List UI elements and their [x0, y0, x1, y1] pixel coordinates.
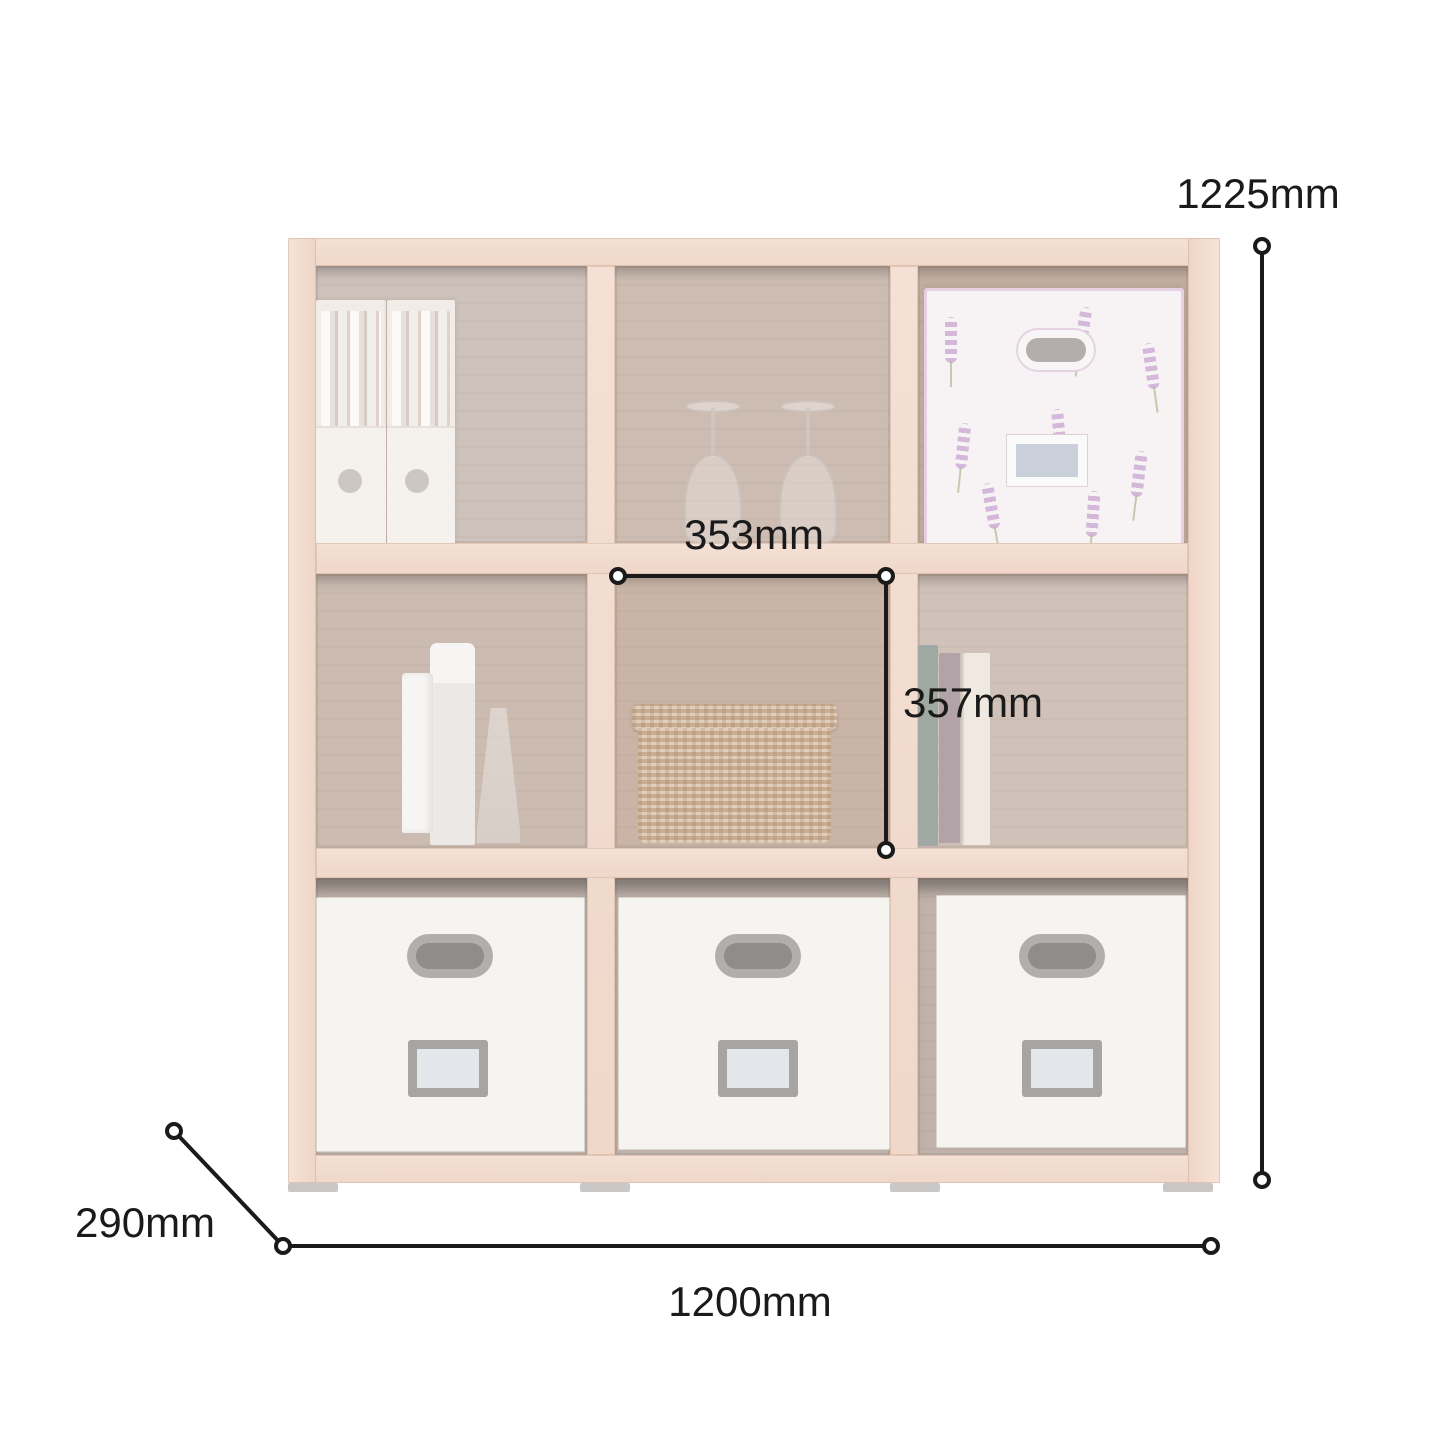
lavender-sprig — [1085, 491, 1100, 538]
shelf-foot — [580, 1183, 630, 1192]
box-label-holder — [718, 1040, 798, 1097]
shelf-bottom-rail — [288, 1155, 1220, 1183]
shelf-right-side — [1188, 238, 1220, 1183]
white-storage-box — [936, 895, 1186, 1148]
lavender-sprig — [981, 482, 1001, 529]
shelf-foot — [288, 1183, 338, 1192]
dimension-endpoint — [1204, 1239, 1218, 1253]
diagram-canvas: 1225mm 353mm 357mm 290mm 1200mm — [0, 0, 1440, 1440]
cell-bottom-middle — [615, 878, 890, 1155]
lavender-sprig — [955, 422, 972, 469]
book-spine — [918, 645, 938, 846]
box-label-holder — [408, 1040, 488, 1097]
lavender-sprig — [945, 317, 957, 363]
books-in-file — [321, 311, 381, 426]
shelf-horizontal-divider — [316, 848, 1188, 878]
finger-hole — [338, 469, 362, 493]
wicker-basket-rim — [632, 704, 837, 730]
cell-bottom-left — [316, 878, 587, 1155]
cosmetic-tube — [477, 708, 520, 843]
cell-top-right — [918, 266, 1188, 543]
box-label-holder — [1022, 1040, 1102, 1097]
cosmetic-bottle — [402, 673, 433, 833]
bookshelf-illustration — [288, 238, 1220, 1183]
finger-hole — [405, 469, 429, 493]
overall-height-label: 1225mm — [1148, 170, 1368, 218]
dimension-endpoint — [276, 1239, 290, 1253]
box-handle-cutout — [407, 934, 493, 978]
inner-cell-height-label: 357mm — [903, 679, 1043, 727]
dimension-endpoint — [167, 1124, 181, 1138]
dimension-endpoint — [1255, 239, 1269, 253]
overall-width-label: 1200mm — [650, 1278, 850, 1326]
books-in-file — [392, 311, 450, 426]
box-handle-cutout — [1019, 934, 1105, 978]
box-label-holder — [1007, 435, 1087, 486]
wicker-basket — [638, 728, 831, 843]
shelf-top-rail — [288, 238, 1220, 266]
box-handle-cutout — [1018, 330, 1094, 370]
depth-label: 290mm — [75, 1199, 215, 1247]
cosmetic-bottle — [430, 643, 475, 845]
dimension-endpoint — [1255, 1173, 1269, 1187]
cell-middle-middle — [615, 574, 890, 848]
cell-bottom-right — [918, 878, 1188, 1155]
cell-middle-left — [316, 574, 587, 848]
lavender-sprig — [1130, 450, 1148, 497]
lavender-fabric-box — [924, 288, 1184, 547]
shelf-foot — [890, 1183, 940, 1192]
shelf-foot — [1163, 1183, 1213, 1192]
cell-top-middle — [615, 266, 890, 543]
inner-cell-width-label: 353mm — [654, 511, 854, 559]
shelf-left-side — [288, 238, 316, 1183]
cell-top-left — [316, 266, 587, 543]
lavender-sprig — [1142, 342, 1160, 389]
box-handle-cutout — [715, 934, 801, 978]
shelf-vertical-divider — [587, 266, 615, 1155]
